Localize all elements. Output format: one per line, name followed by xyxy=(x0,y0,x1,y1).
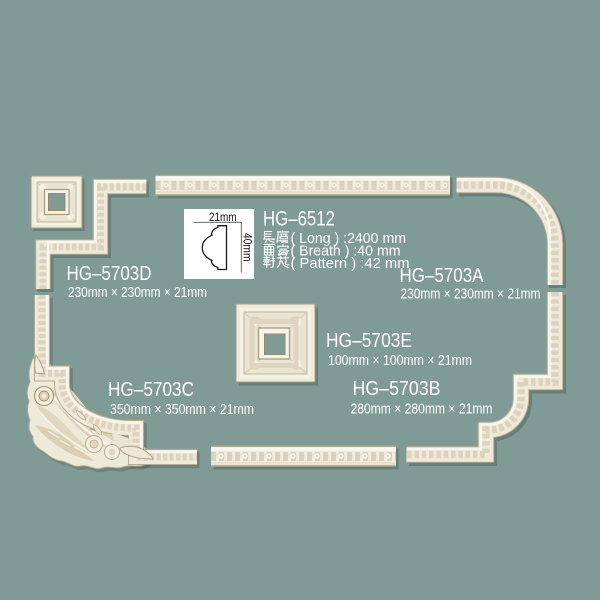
svg-text:( Pattern ) :42 mm: ( Pattern ) :42 mm xyxy=(291,255,410,272)
svg-text:100mm × 100mm × 21mm: 100mm × 100mm × 21mm xyxy=(328,352,472,369)
svg-text:HG–5703C: HG–5703C xyxy=(108,379,194,401)
svg-text:350mm × 350mm × 21mm: 350mm × 350mm × 21mm xyxy=(110,401,254,418)
svg-text:HG–5703B: HG–5703B xyxy=(353,378,441,400)
svg-text:280mm × 280mm × 21mm: 280mm × 280mm × 21mm xyxy=(351,401,493,418)
svg-text:230mm × 230mm × 21mm: 230mm × 230mm × 21mm xyxy=(68,284,207,301)
svg-text:HG–5703E: HG–5703E xyxy=(326,330,412,352)
svg-text:HG–6512: HG–6512 xyxy=(263,207,335,230)
svg-text:40mm: 40mm xyxy=(241,233,253,262)
svg-text:230mm × 230mm × 21mm: 230mm × 230mm × 21mm xyxy=(401,285,541,302)
svg-text:HG–5703D: HG–5703D xyxy=(67,263,152,285)
svg-text:HG–5703A: HG–5703A xyxy=(400,265,485,287)
svg-text:21mm: 21mm xyxy=(209,212,237,224)
